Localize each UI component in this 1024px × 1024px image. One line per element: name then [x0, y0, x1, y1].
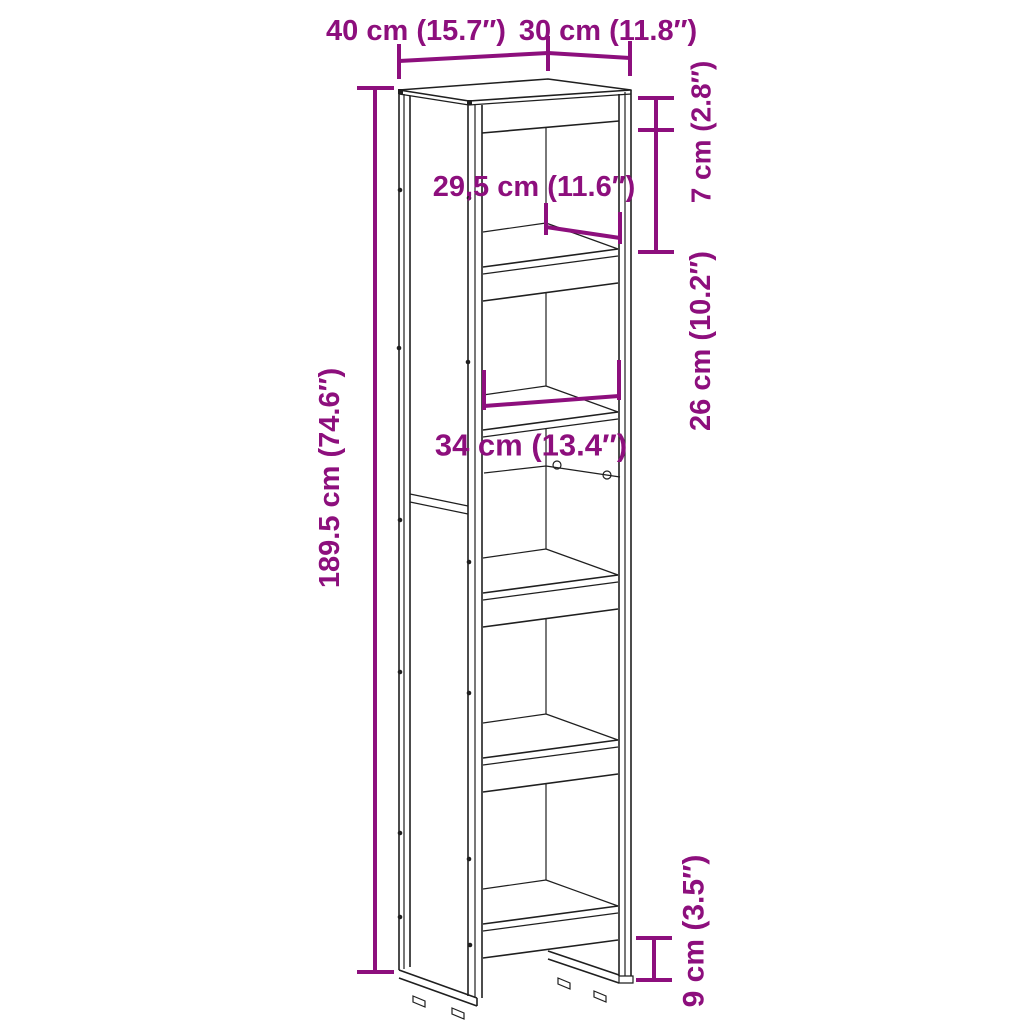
back-rail-and-holes [484, 461, 620, 479]
right-sled-base [548, 951, 633, 1002]
side-mid-rail [410, 494, 468, 514]
label-top-section: 7 cm (2.8″) [686, 61, 717, 204]
front-left-post [468, 103, 482, 998]
bookcase-drawing [397, 79, 633, 1019]
label-clearance: 9 cm (3.5″) [678, 855, 711, 1008]
dim-line-top [399, 53, 630, 61]
shelf [483, 714, 618, 792]
top-rail-edge [482, 121, 619, 133]
left-sled-base [399, 970, 477, 1019]
diagram-page: 40 cm (15.7″) 30 cm (11.8″) 7 cm (2.8″) … [0, 0, 1024, 1024]
bottom-shelf [483, 880, 618, 958]
screw-dots [397, 188, 473, 948]
label-depth: 30 cm (11.8″) [519, 15, 697, 47]
back-left-post [399, 90, 410, 970]
label-inner-width: 34 cm (13.4″) [435, 428, 627, 463]
label-inner-depth: 29,5 cm (11.6″) [433, 171, 636, 203]
shelf [483, 549, 618, 627]
bookcase-diagram: 40 cm (15.7″) 30 cm (11.8″) 7 cm (2.8″) … [0, 0, 1024, 1024]
label-height: 189.5 cm (74.6″) [314, 368, 346, 588]
label-compartment: 26 cm (10.2″) [685, 251, 717, 431]
top-panel [398, 79, 631, 105]
label-width: 40 cm (15.7″) [326, 15, 506, 47]
